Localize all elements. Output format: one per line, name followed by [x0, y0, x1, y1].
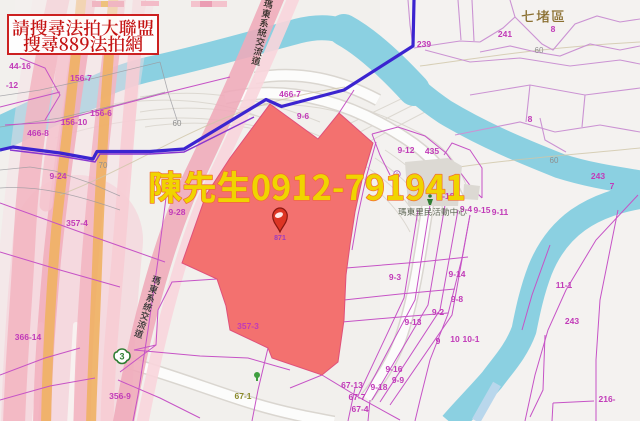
svg-text:9: 9: [436, 336, 441, 346]
svg-text:10-1: 10-1: [462, 334, 479, 344]
svg-text:9-24: 9-24: [49, 171, 66, 181]
svg-text:466-7: 466-7: [279, 89, 301, 99]
svg-text:60: 60: [550, 156, 559, 165]
svg-text:67-4: 67-4: [351, 404, 368, 414]
svg-text:9-4: 9-4: [460, 204, 473, 214]
svg-text:239: 239: [417, 39, 431, 49]
svg-text:466-8: 466-8: [27, 128, 49, 138]
svg-text:871: 871: [274, 235, 286, 242]
svg-text:11-1: 11-1: [556, 280, 573, 290]
svg-text:156-7: 156-7: [70, 73, 92, 83]
svg-text:9-16: 9-16: [385, 364, 402, 374]
svg-text:9-15: 9-15: [473, 205, 490, 215]
svg-text:-12: -12: [6, 80, 19, 90]
svg-text:67-1: 67-1: [234, 391, 251, 401]
svg-text:60: 60: [535, 46, 544, 55]
svg-text:9-2: 9-2: [432, 307, 445, 317]
svg-text:156-6: 156-6: [90, 108, 112, 118]
svg-text:357-4: 357-4: [66, 218, 88, 228]
svg-text:67-7: 67-7: [348, 392, 365, 402]
svg-text:9-3: 9-3: [389, 272, 402, 282]
svg-text:9-11: 9-11: [492, 207, 509, 217]
svg-text:9-18: 9-18: [370, 382, 387, 392]
svg-text:9-14: 9-14: [448, 269, 465, 279]
svg-text:7: 7: [610, 181, 615, 191]
svg-text:357-3: 357-3: [237, 321, 259, 331]
svg-text:60: 60: [173, 119, 182, 128]
svg-text:241: 241: [498, 29, 512, 39]
svg-text:243: 243: [565, 316, 579, 326]
svg-text:216-: 216-: [598, 394, 615, 404]
svg-text:9-8: 9-8: [451, 294, 464, 304]
svg-text:435: 435: [425, 146, 439, 156]
svg-text:9-13: 9-13: [404, 317, 421, 327]
svg-text:156-10: 156-10: [61, 117, 88, 127]
svg-text:9-6: 9-6: [297, 111, 310, 121]
svg-text:9-12: 9-12: [397, 145, 414, 155]
svg-text:8: 8: [551, 24, 556, 34]
svg-text:67-13: 67-13: [341, 380, 363, 390]
svg-text:3: 3: [119, 352, 124, 362]
svg-text:10: 10: [450, 334, 460, 344]
svg-text:44-16: 44-16: [9, 61, 31, 71]
svg-text:70: 70: [99, 161, 108, 170]
svg-text:366-14: 366-14: [15, 332, 42, 342]
svg-text:8: 8: [528, 114, 533, 124]
svg-text:9-9: 9-9: [392, 375, 405, 385]
svg-text:243: 243: [591, 171, 605, 181]
svg-text:356-9: 356-9: [109, 391, 131, 401]
svg-text:9-28: 9-28: [168, 207, 185, 217]
